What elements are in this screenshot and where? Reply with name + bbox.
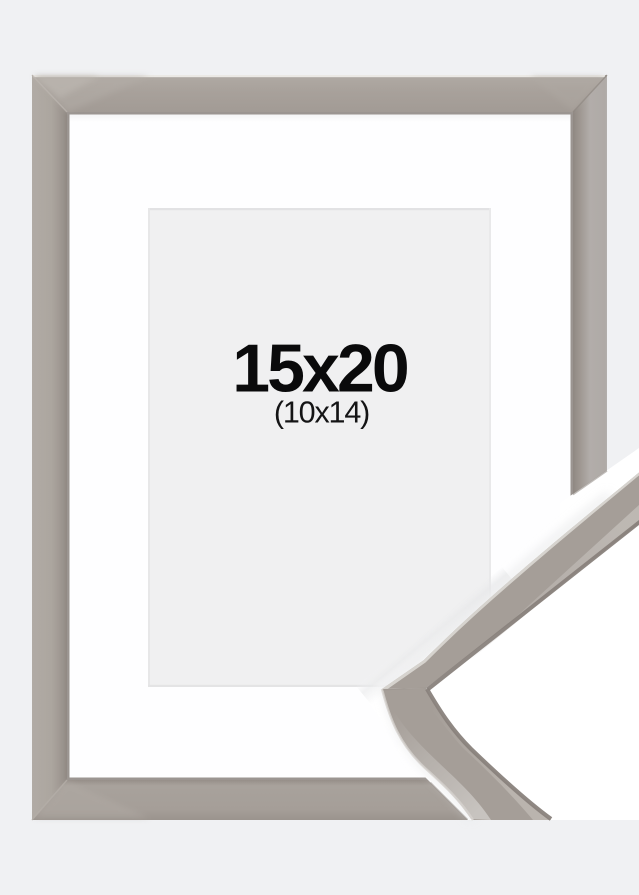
svg-text:(10x14): (10x14): [274, 396, 369, 430]
